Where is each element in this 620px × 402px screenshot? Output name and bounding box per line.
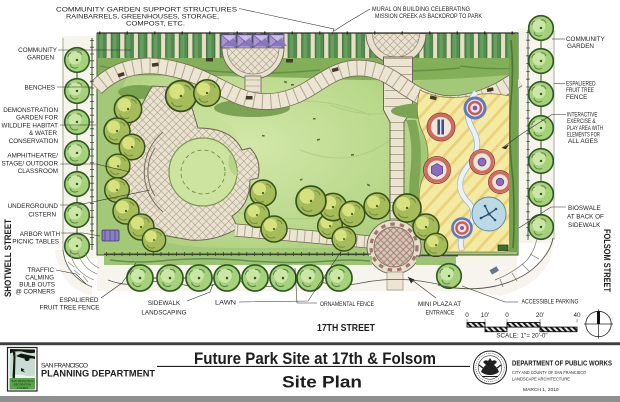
svg-text:LAWN: LAWN <box>215 300 237 307</box>
svg-text:ACCESSIBLE PARKING: ACCESSIBLE PARKING <box>522 299 579 306</box>
svg-text:STAGE/ OUTDOOR: STAGE/ OUTDOOR <box>1 160 58 167</box>
svg-text:EXERCISE &: EXERCISE & <box>567 118 596 125</box>
svg-text:Site Plan: Site Plan <box>282 373 362 391</box>
svg-text:COMMUNITY: COMMUNITY <box>18 47 58 54</box>
svg-text:PLANNING DEPARTMENT: PLANNING DEPARTMENT <box>41 368 155 378</box>
svg-text:LANDSCAPING: LANDSCAPING <box>141 310 186 317</box>
svg-text:CLASSROOM: CLASSROOM <box>18 168 58 175</box>
svg-text:MINI PLAZA AT: MINI PLAZA AT <box>418 301 461 308</box>
svg-text:LANDSCAPE ARCHITECTURE: LANDSCAPE ARCHITECTURE <box>512 377 571 383</box>
svg-text:0: 0 <box>505 312 509 319</box>
svg-text:FRUIT TREE FENCE: FRUIT TREE FENCE <box>40 305 100 312</box>
svg-text:GARDEN: GARDEN <box>567 43 594 50</box>
svg-text:SAN FRANCISCO: SAN FRANCISCO <box>11 379 33 383</box>
svg-text:BIOSWALE: BIOSWALE <box>568 205 601 212</box>
svg-text:Future Park Site at 17th & Fol: Future Park Site at 17th & Folsom <box>194 350 436 368</box>
svg-text:BENCHES: BENCHES <box>25 85 55 92</box>
svg-text:SIDEWALK: SIDEWALK <box>568 222 601 229</box>
svg-text:ESPALIERED: ESPALIERED <box>59 297 99 304</box>
svg-text:SIDEWALK: SIDEWALK <box>148 300 181 307</box>
svg-text:RECREATION: RECREATION <box>14 383 31 387</box>
svg-text:ENTRANCE: ENTRANCE <box>426 310 455 317</box>
svg-text:RAINBARRELS, GREENHOUSES, STOR: RAINBARRELS, GREENHOUSES, STORAGE, <box>66 14 219 21</box>
svg-text:AT BACK OF: AT BACK OF <box>567 214 604 221</box>
svg-text:CALMING: CALMING <box>25 274 54 281</box>
svg-text:COMMUNITY: COMMUNITY <box>566 36 606 43</box>
svg-text:17TH STREET: 17TH STREET <box>317 323 375 334</box>
svg-text:MURAL ON BUILDING CELEBRATING: MURAL ON BUILDING CELEBRATING <box>372 6 470 13</box>
svg-text:& PARKS: & PARKS <box>17 386 29 390</box>
svg-text:GARDEN FOR: GARDEN FOR <box>16 115 58 122</box>
svg-text:FOLSOM STREET: FOLSOM STREET <box>602 229 612 292</box>
svg-text:GARDEN: GARDEN <box>27 55 54 62</box>
svg-text:COMPOST, ETC.: COMPOST, ETC. <box>126 21 185 28</box>
svg-text:TRAFFIC: TRAFFIC <box>27 267 54 274</box>
svg-text:DEMONSTRATION: DEMONSTRATION <box>3 107 58 114</box>
svg-text:ALL AGES: ALL AGES <box>568 138 598 145</box>
svg-text:20': 20' <box>536 312 544 319</box>
svg-text:DEPARTMENT OF PUBLIC WORKS: DEPARTMENT OF PUBLIC WORKS <box>512 359 612 368</box>
svg-text:MARCH 1, 2010: MARCH 1, 2010 <box>523 387 559 393</box>
svg-text:CISTERN: CISTERN <box>28 212 56 219</box>
svg-text:40: 40 <box>573 312 581 319</box>
svg-text:10': 10' <box>481 312 489 319</box>
svg-text:ARBOR WITH: ARBOR WITH <box>20 231 61 238</box>
svg-text:@ CORNERS: @ CORNERS <box>15 289 55 296</box>
svg-text:SHOTWELL STREET: SHOTWELL STREET <box>3 219 13 297</box>
svg-text:COMMUNITY GARDEN SUPPORT STRUC: COMMUNITY GARDEN SUPPORT STRUCTURES <box>56 7 237 14</box>
svg-text:MISSION CREEK AS BACKDROP TO P: MISSION CREEK AS BACKDROP TO PARK <box>375 13 483 20</box>
svg-text:BULB OUTS: BULB OUTS <box>19 281 55 288</box>
svg-text:UNDERGROUND: UNDERGROUND <box>8 203 59 210</box>
svg-text:CONSERVATION: CONSERVATION <box>9 138 59 145</box>
svg-text:CITY AND COUNTY OF SAN FRANCIS: CITY AND COUNTY OF SAN FRANCISCO <box>512 370 586 376</box>
svg-text:ORNAMENTAL FENCE: ORNAMENTAL FENCE <box>320 301 374 308</box>
svg-text:AMPHITHEATRE/: AMPHITHEATRE/ <box>7 153 58 160</box>
svg-text:& WATER: & WATER <box>29 130 57 137</box>
svg-text:SCALE: 1"= 20'-0": SCALE: 1"= 20'-0" <box>496 333 547 340</box>
svg-text:WILDLIFE HABITAT: WILDLIFE HABITAT <box>2 122 59 129</box>
svg-text:0: 0 <box>465 312 469 319</box>
svg-text:FENCE: FENCE <box>566 94 587 101</box>
svg-text:PICNIC TABLES: PICNIC TABLES <box>12 239 59 246</box>
